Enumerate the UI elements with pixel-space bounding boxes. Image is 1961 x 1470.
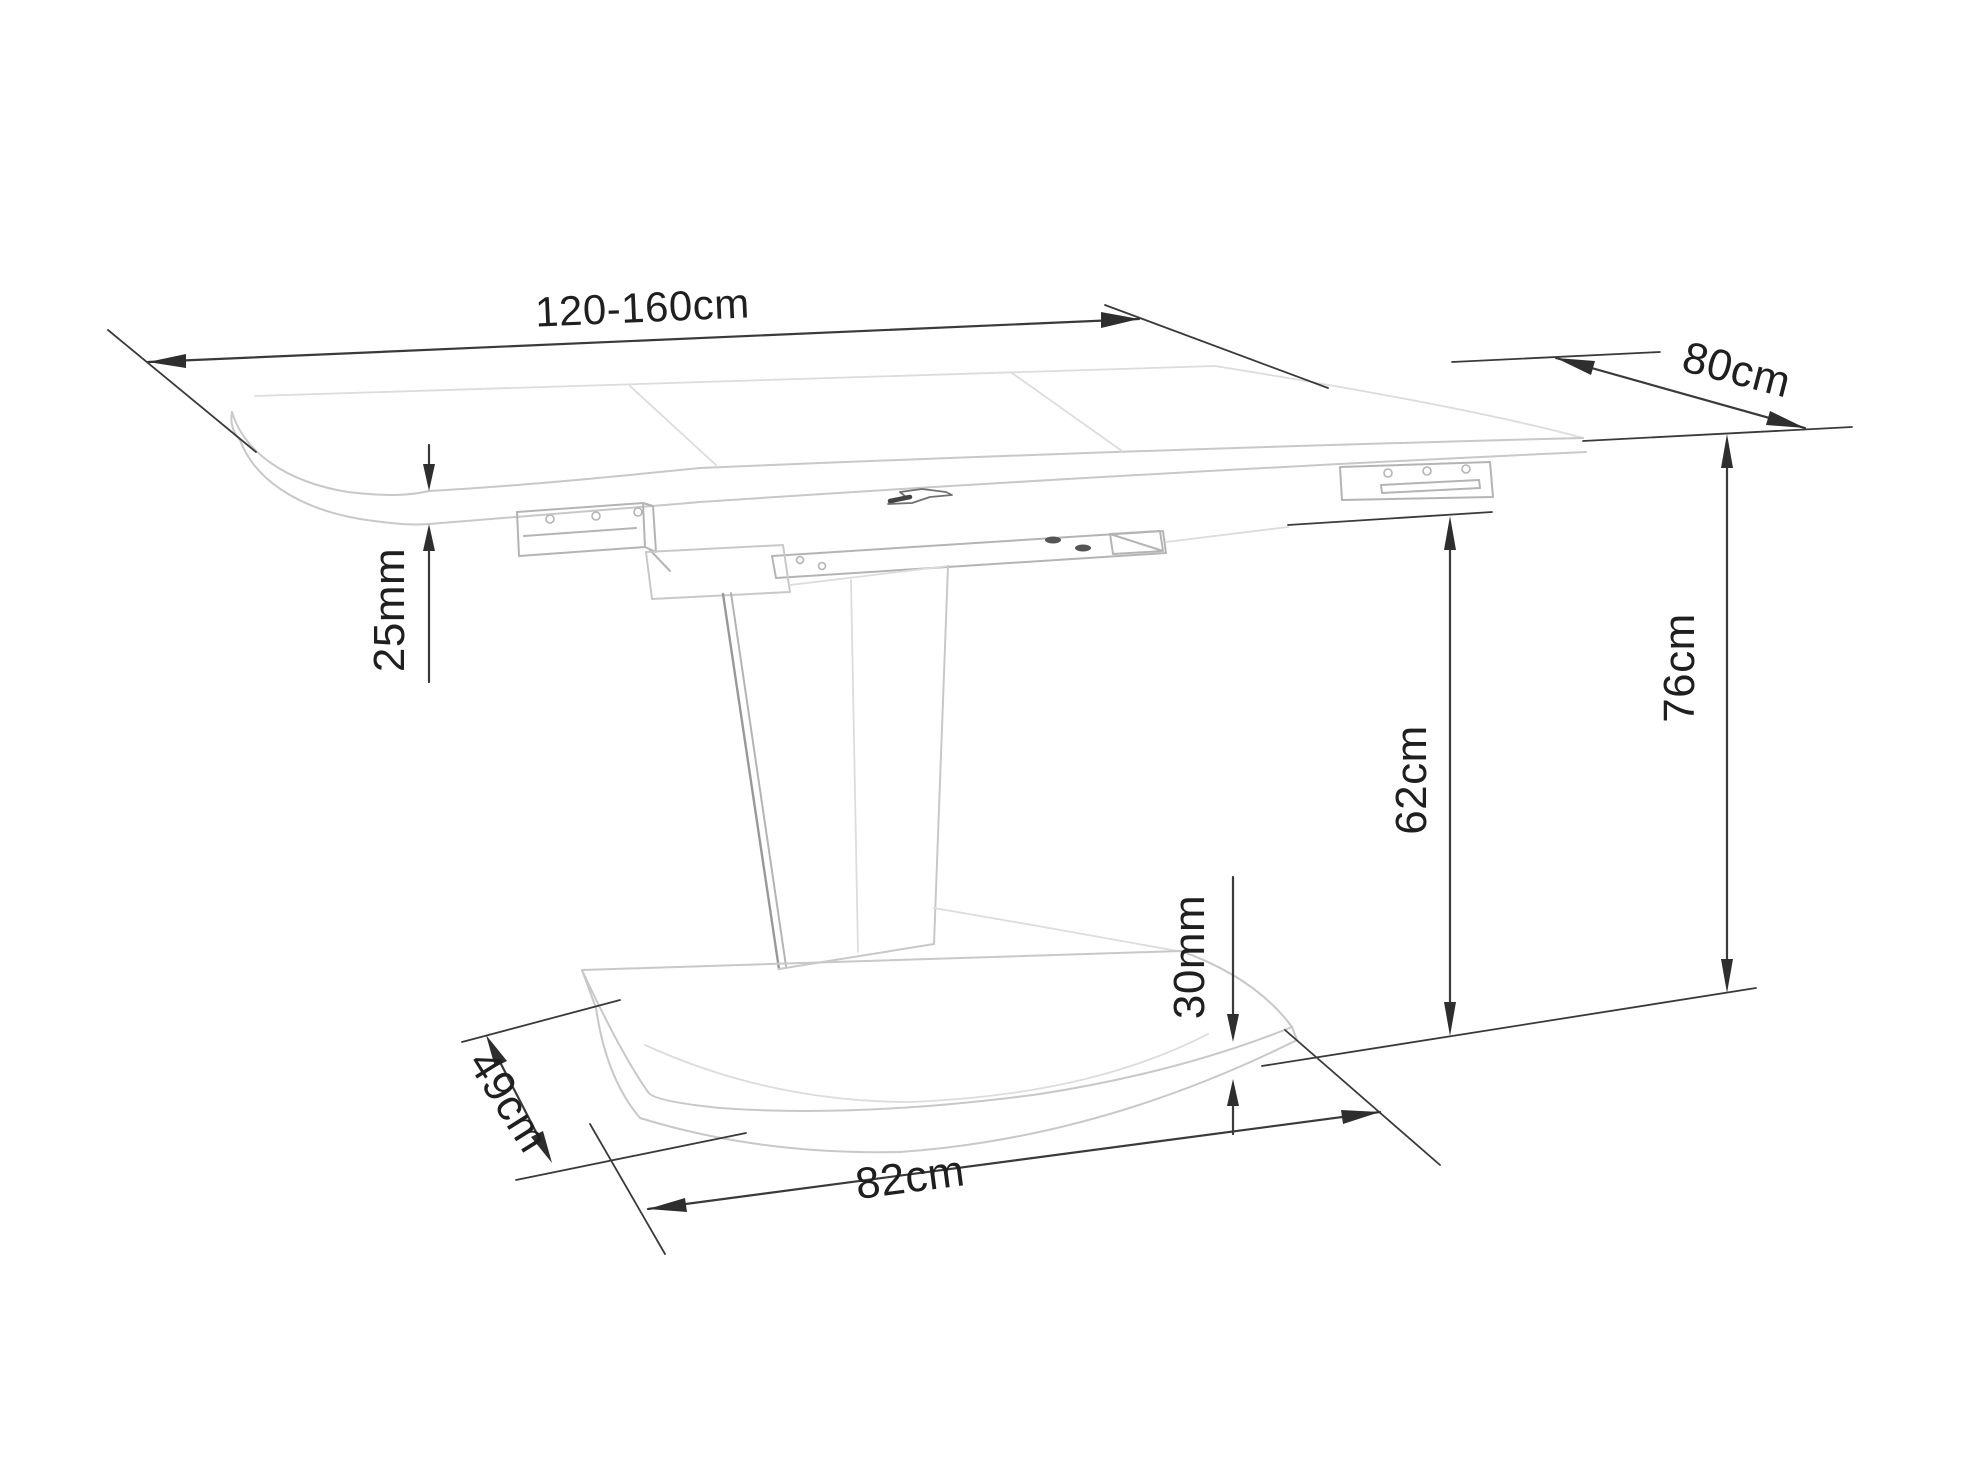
beam-outline	[772, 531, 1166, 578]
dim-table-length: 120-160cm	[108, 279, 1328, 452]
base-width-ext-left	[590, 1124, 665, 1254]
pedestal-column	[646, 545, 1183, 969]
base-left-side	[582, 970, 640, 1118]
top-thickness-arrow-down	[423, 464, 435, 491]
center-latch	[888, 489, 952, 504]
beam-screw-1	[797, 557, 804, 564]
top-thickness-arrow-up	[423, 524, 435, 551]
tabletop-back-edge	[255, 366, 1215, 396]
beam-screw-2	[819, 563, 826, 570]
base-thickness-arrow-up	[1227, 1079, 1239, 1106]
base-bottom-contour	[640, 1027, 1297, 1152]
base-inner-contour	[645, 1034, 1208, 1102]
dim-top-thickness: 25mm	[365, 445, 435, 682]
dimension-label-base-depth: 49cm	[458, 1042, 558, 1161]
slide-rail-right	[1340, 462, 1493, 500]
base-width-dim-line	[648, 1112, 1380, 1209]
tabletop-underside-edge	[240, 440, 1586, 524]
clearance-arrow-top	[1444, 516, 1456, 550]
support-beam	[772, 527, 1288, 578]
dim-total-height: 76cm	[1655, 434, 1733, 993]
dimension-label-top-thickness: 25mm	[365, 548, 414, 672]
column-front-crease	[851, 580, 858, 952]
dimension-label-base-width: 82cm	[853, 1146, 968, 1209]
dim-table-depth: 80cm	[1452, 333, 1852, 441]
tabletop-right-end-edge	[1215, 366, 1583, 438]
left-rail-screw-2	[592, 512, 600, 520]
column-left-edge	[723, 594, 779, 969]
beam-bolt-1	[1045, 537, 1061, 544]
dimension-label-table-length: 120-160cm	[534, 279, 750, 335]
total-height-arrow-bottom	[1721, 959, 1733, 993]
table-length-ext-left	[108, 330, 256, 452]
left-rail-screw-1	[546, 515, 554, 523]
clearance-ext-top	[1288, 512, 1492, 525]
column-foot-flare	[934, 908, 1183, 952]
column-bottom-edge	[779, 944, 934, 969]
total-height-arrow-top	[1721, 434, 1733, 468]
base-width-arrow-left	[648, 1198, 687, 1212]
clearance-arrow-bottom	[1444, 1002, 1456, 1036]
table-dimension-drawing: 120-160cm 80cm 25mm 76cm 62cm 30m	[0, 0, 1961, 1470]
right-rail-screw-2	[1423, 467, 1431, 475]
pedestal-top-cap	[646, 545, 790, 599]
table-length-arrow-right	[1101, 312, 1139, 328]
dimension-label-base-thickness: 30mm	[1165, 895, 1214, 1019]
dimension-label-clearance-height: 62cm	[1387, 725, 1436, 835]
dim-clearance-height: 62cm	[1288, 512, 1492, 1036]
beam-bolt-2	[1075, 545, 1091, 552]
column-right-edge	[934, 566, 948, 944]
column-left-edge-inner	[731, 593, 786, 966]
right-rail-slot-bar	[1381, 480, 1480, 493]
right-rail-screw-1	[1384, 469, 1392, 477]
dimension-drawing-page: 120-160cm 80cm 25mm 76cm 62cm 30m	[0, 0, 1961, 1470]
floor-reference	[1262, 988, 1756, 1066]
table-depth-arrow-left	[1556, 358, 1595, 375]
tabletop-leaf-seam-1	[630, 386, 716, 465]
left-rail-slot	[524, 528, 636, 536]
dimension-label-total-height: 76cm	[1655, 613, 1704, 723]
base-width-arrow-right	[1341, 1110, 1380, 1124]
dim-base-width: 82cm	[590, 1030, 1440, 1254]
base-depth-ext-lower	[516, 1133, 746, 1180]
left-rail-screw-3	[634, 508, 642, 516]
dim-base-depth: 49cm	[458, 1000, 746, 1180]
beam-frame-extension	[1166, 527, 1288, 542]
tabletop-leaf-seam-2	[1012, 373, 1122, 451]
base-depth-ext-upper	[462, 1000, 620, 1042]
latch-hook	[890, 497, 910, 501]
table-depth-arrow-right	[1766, 411, 1805, 428]
tabletop-front-top-edge	[232, 412, 1583, 495]
dim-base-thickness: 30mm	[1165, 877, 1239, 1134]
base-thickness-arrow-down	[1227, 1014, 1239, 1042]
table-length-arrow-left	[148, 354, 186, 368]
tabletop	[231, 366, 1586, 524]
beam-cross-bracket	[1110, 531, 1163, 554]
floor-extension-line	[1262, 988, 1756, 1066]
table-length-ext-right	[1105, 305, 1328, 388]
table-depth-ext-front	[1583, 427, 1852, 441]
right-rail-screw-3	[1462, 465, 1470, 473]
